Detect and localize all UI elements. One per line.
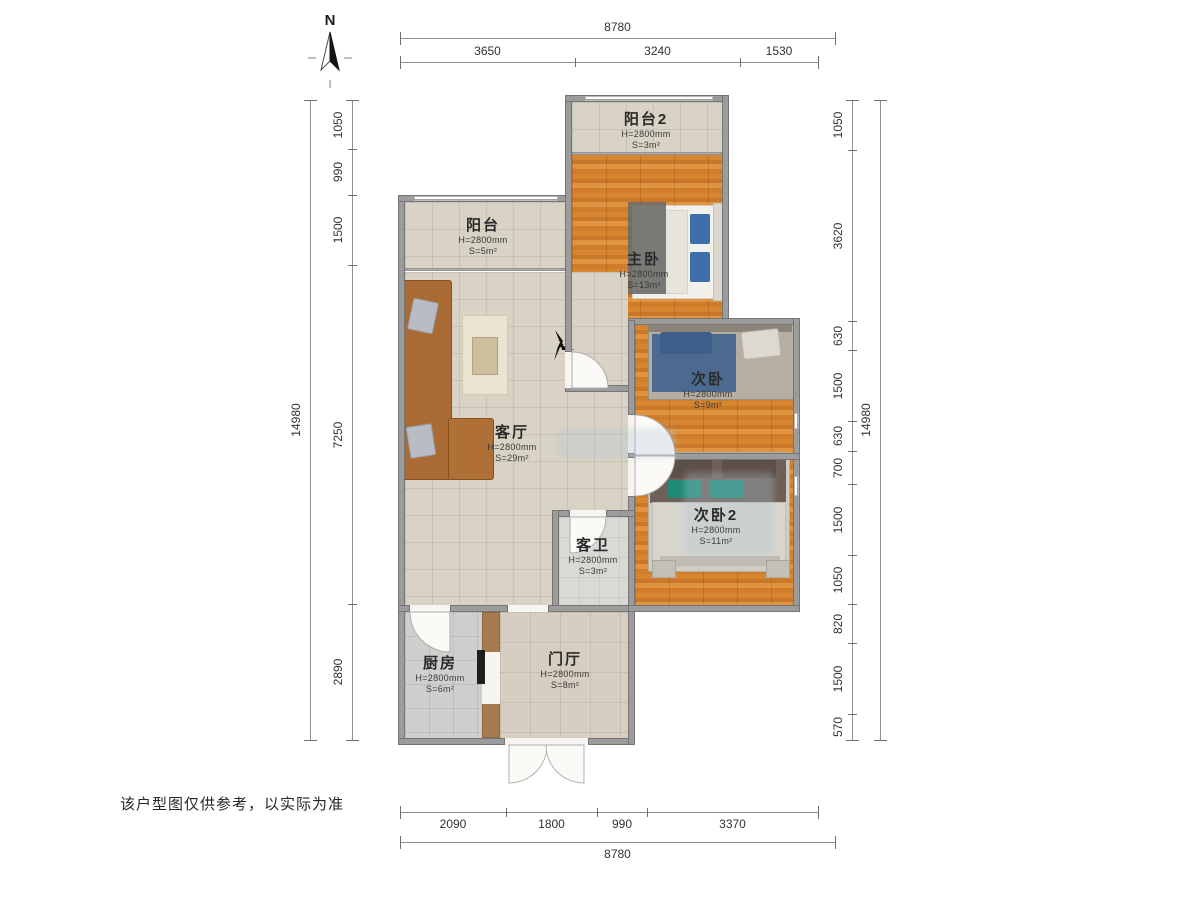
room-area: S=5m² — [458, 246, 507, 258]
room-area: S=13m² — [619, 280, 668, 292]
dim-mark — [848, 321, 857, 322]
dim-mark — [846, 740, 859, 741]
room-label-entry-hall: 门厅 H=2800mm S=8m² — [540, 652, 589, 692]
dim-mark — [348, 149, 357, 150]
room-height: H=2800mm — [487, 442, 536, 454]
floor-plan-canvas: 阳台2 H=2800mm S=3m² 阳台 H=2800mm S=5m² 主卧 … — [0, 0, 1200, 900]
dimension-label: 570 — [831, 717, 845, 737]
room-label-bedroom2: 次卧 H=2800mm S=9m² — [683, 372, 732, 412]
dim-mark — [874, 100, 887, 101]
dim-mark — [400, 836, 401, 849]
dimension-label: 990 — [331, 162, 345, 182]
room-height: H=2800mm — [415, 673, 464, 685]
dimension-label: 1500 — [831, 372, 845, 399]
dim-mark — [848, 150, 857, 151]
dim-mark — [848, 421, 857, 422]
dim-mark — [848, 714, 857, 715]
dimension-label: 3370 — [719, 817, 746, 831]
dim-mark — [304, 740, 317, 741]
room-name: 阳台 — [458, 218, 507, 235]
dim-mark — [346, 100, 359, 101]
dim-mark — [348, 195, 357, 196]
dim-mark — [400, 32, 401, 45]
room-area: S=3m² — [568, 566, 617, 578]
dimension-line — [400, 38, 835, 39]
dimension-label: 3620 — [831, 222, 845, 249]
room-name: 次卧 — [683, 372, 732, 389]
dimension-label: 1500 — [331, 217, 345, 244]
dim-mark — [304, 100, 317, 101]
room-label-balcony: 阳台 H=2800mm S=5m² — [458, 218, 507, 258]
room-area: S=29m² — [487, 453, 536, 465]
dimension-line — [400, 812, 818, 813]
room-name: 厨房 — [415, 656, 464, 673]
dim-mark — [848, 451, 857, 452]
room-area: S=6m² — [415, 684, 464, 696]
dim-mark — [348, 604, 357, 605]
dim-mark — [846, 100, 859, 101]
dim-mark — [818, 56, 819, 69]
dimension-label: 700 — [831, 457, 845, 477]
dim-mark — [874, 740, 887, 741]
dim-mark — [835, 836, 836, 849]
dim-mark — [506, 808, 507, 817]
dimension-line — [310, 100, 311, 740]
dimension-label: 1050 — [831, 566, 845, 593]
dim-mark — [848, 555, 857, 556]
dimension-total-label: 8780 — [604, 20, 631, 34]
dimension-total-label: 14980 — [859, 403, 873, 436]
dimension-total-label: 8780 — [604, 847, 631, 861]
room-name: 次卧2 — [691, 508, 740, 525]
dimension-label: 1050 — [831, 112, 845, 139]
dimension-label: 630 — [831, 325, 845, 345]
dimension-label: 7250 — [331, 421, 345, 448]
dim-mark — [848, 484, 857, 485]
dimension-total-label: 14980 — [289, 403, 303, 436]
bedroom3-door — [635, 456, 675, 496]
room-label-master-bedroom: 主卧 H=2800mm S=13m² — [619, 252, 668, 292]
dim-mark — [848, 350, 857, 351]
dim-mark — [647, 808, 648, 817]
room-name: 门厅 — [540, 652, 589, 669]
room-height: H=2800mm — [621, 129, 670, 141]
room-label-bathroom: 客卫 H=2800mm S=3m² — [568, 538, 617, 578]
room-name: 主卧 — [619, 252, 668, 269]
dim-mark — [597, 808, 598, 817]
room-name: 客卫 — [568, 538, 617, 555]
room-area: S=8m² — [540, 680, 589, 692]
dimension-label: 1530 — [766, 44, 793, 58]
dimension-line — [400, 842, 835, 843]
room-label-living-room: 客厅 H=2800mm S=29m² — [487, 425, 536, 465]
room-area: S=3m² — [621, 140, 670, 152]
room-height: H=2800mm — [619, 269, 668, 281]
room-area: S=9m² — [683, 400, 732, 412]
dimension-label: 1500 — [831, 506, 845, 533]
dimension-line — [880, 100, 881, 740]
watermark — [558, 428, 676, 458]
dim-mark — [835, 32, 836, 45]
dim-mark — [348, 265, 357, 266]
room-label-kitchen: 厨房 H=2800mm S=6m² — [415, 656, 464, 696]
dimension-label: 1500 — [831, 665, 845, 692]
room-label-bedroom3: 次卧2 H=2800mm S=11m² — [691, 508, 740, 548]
room-height: H=2800mm — [540, 669, 589, 681]
dimension-label: 2890 — [331, 659, 345, 686]
room-name: 客厅 — [487, 425, 536, 442]
room-height: H=2800mm — [683, 389, 732, 401]
dim-mark — [818, 806, 819, 819]
room-height: H=2800mm — [458, 235, 507, 247]
dimension-label: 1800 — [538, 817, 565, 831]
room-label-balcony2: 阳台2 H=2800mm S=3m² — [621, 112, 670, 152]
dim-mark — [848, 643, 857, 644]
entry-door-left — [509, 745, 547, 783]
dimension-label: 3240 — [644, 44, 671, 58]
dimension-label: 990 — [612, 817, 632, 831]
dimension-line — [400, 62, 818, 63]
dimension-line — [352, 100, 353, 740]
room-height: H=2800mm — [691, 525, 740, 537]
room-area: S=11m² — [691, 536, 740, 548]
master-door — [572, 352, 608, 388]
dim-mark — [346, 740, 359, 741]
dimension-label: 1050 — [331, 111, 345, 138]
dimension-line — [852, 100, 853, 740]
dimension-label: 820 — [831, 613, 845, 633]
dim-mark — [400, 56, 401, 69]
entry-door-right — [546, 745, 584, 783]
dim-mark — [740, 58, 741, 67]
dim-mark — [848, 604, 857, 605]
dimension-label: 3650 — [474, 44, 501, 58]
dimension-label: 630 — [831, 426, 845, 446]
dim-mark — [575, 58, 576, 67]
room-height: H=2800mm — [568, 555, 617, 567]
kitchen-door — [410, 612, 450, 652]
room-name: 阳台2 — [621, 112, 670, 129]
dimension-label: 2090 — [440, 817, 467, 831]
dim-mark — [400, 806, 401, 819]
